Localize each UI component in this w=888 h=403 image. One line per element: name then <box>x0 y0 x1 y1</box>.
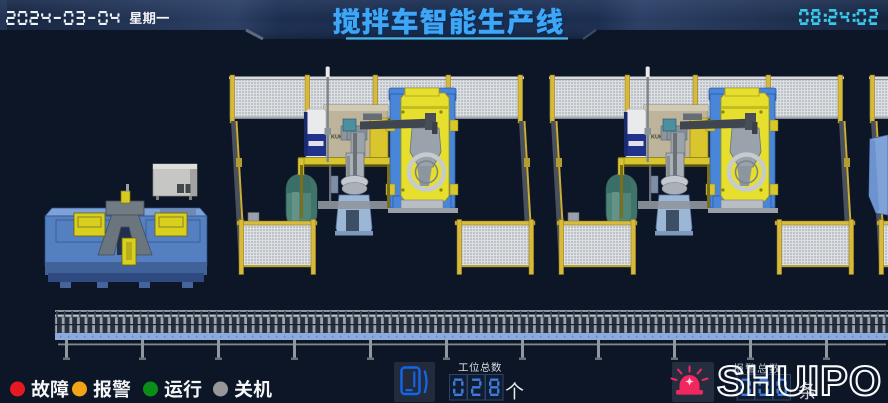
svg-text:SHUIPO: SHUIPO <box>717 357 882 403</box>
